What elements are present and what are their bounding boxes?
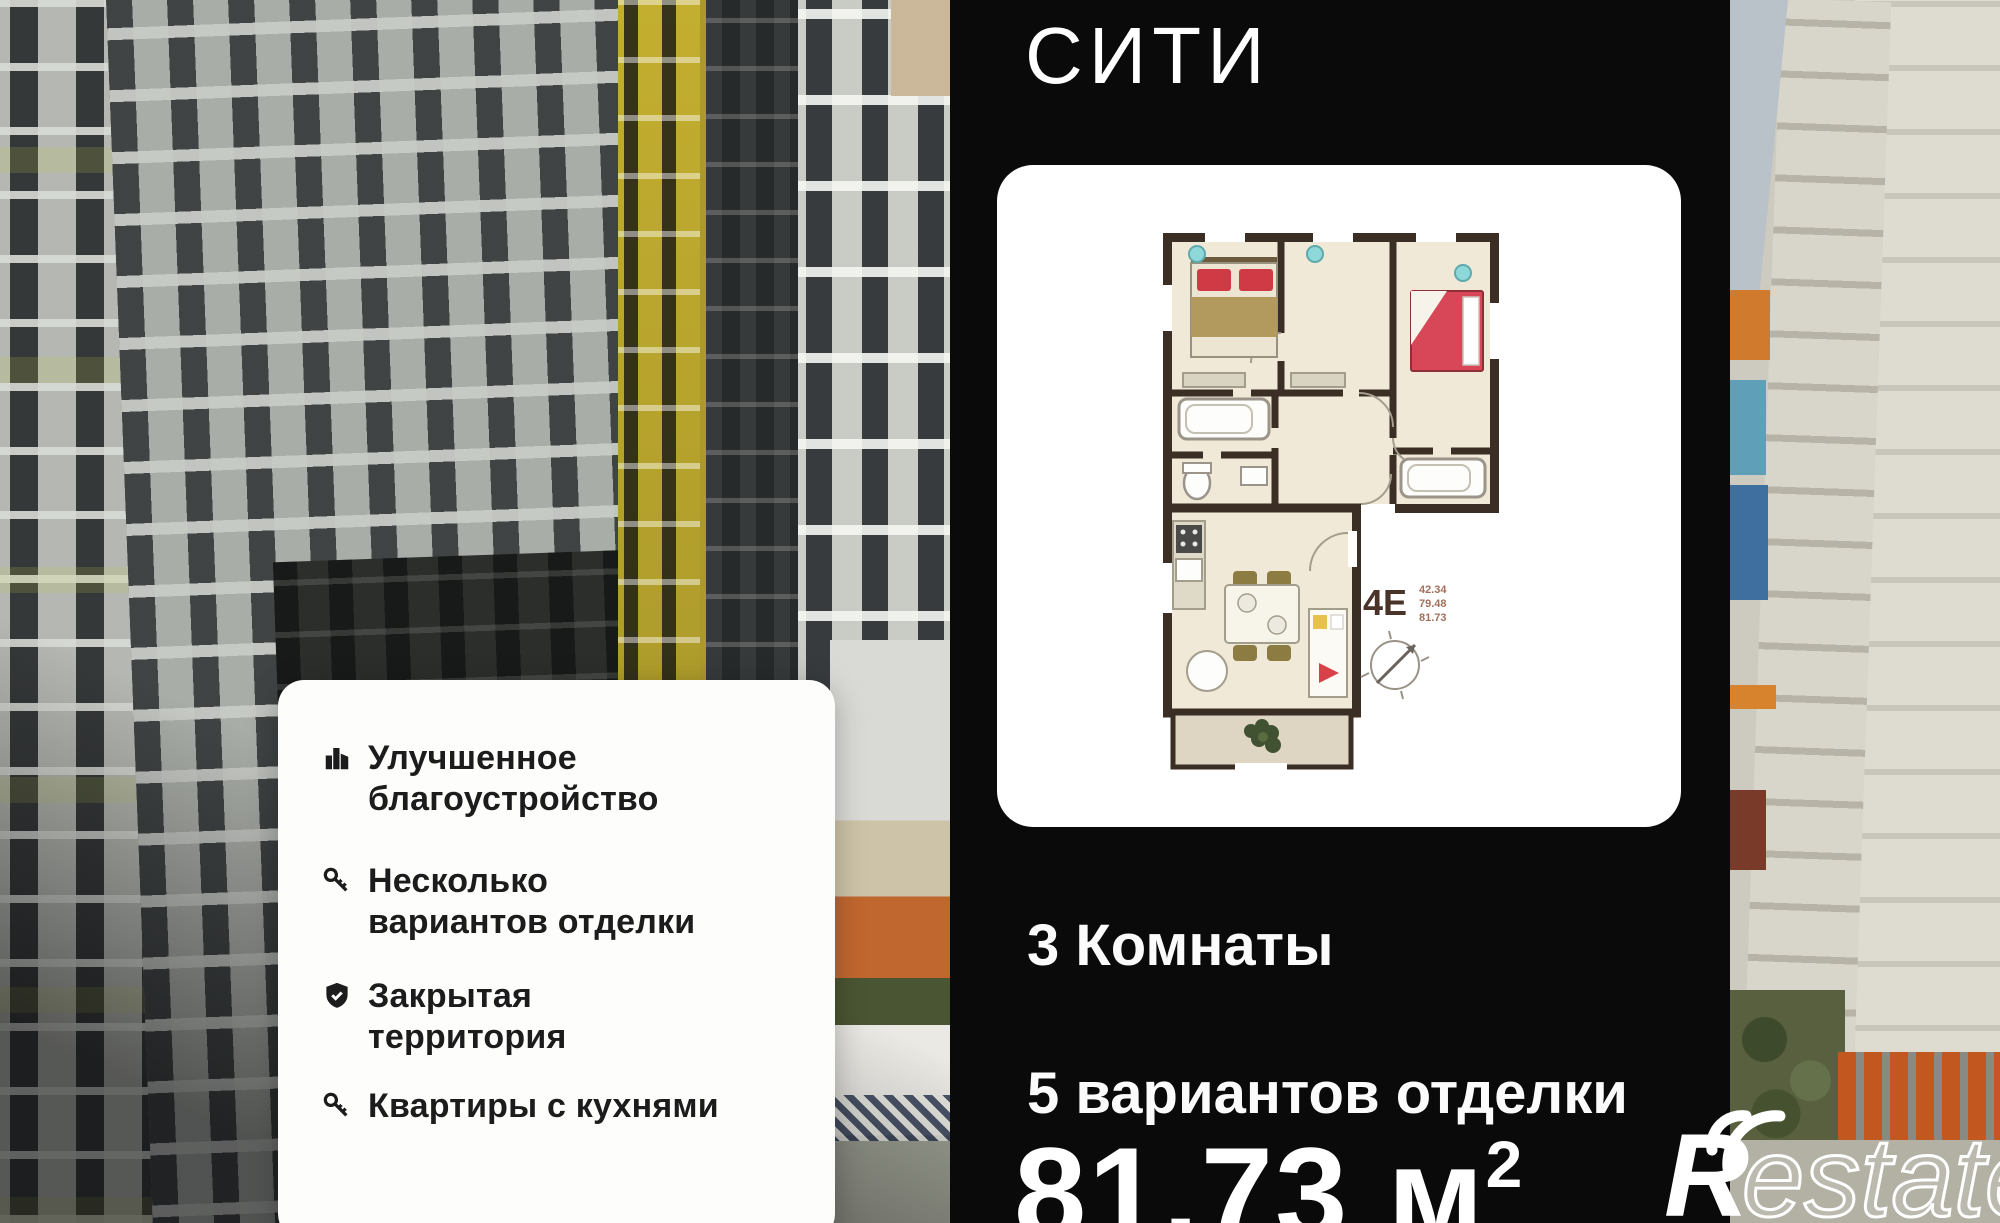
dark-red-balcony xyxy=(1730,790,1766,870)
rooms-count-text: 3 Комнаты xyxy=(1027,912,1334,979)
tent-checker-band xyxy=(830,1095,950,1142)
courtyard-strip xyxy=(830,640,950,1223)
key-icon xyxy=(322,866,352,896)
complex-title-line2: СИТИ xyxy=(1025,14,1271,98)
area-value: 81.73 xyxy=(1014,1120,1349,1223)
feature-label: Квартиры с кухнями xyxy=(368,1086,719,1127)
plan-type-label: 4Е xyxy=(1363,582,1407,623)
features-card: Улучшенное благоустройство Несколько вар… xyxy=(278,680,835,1223)
finish-options-text: 5 вариантов отделки xyxy=(1027,1060,1628,1127)
feature-item-finishes: Несколько вариантов отделки xyxy=(322,861,802,943)
feature-label: Улучшенное благоустройство xyxy=(368,738,659,820)
compass-rose xyxy=(1361,631,1429,699)
area-superscript: 2 xyxy=(1486,1127,1525,1201)
feature-label: Несколько вариантов отделки xyxy=(368,861,695,943)
key-icon xyxy=(322,1091,352,1121)
feature-label: Закрытая территория xyxy=(368,976,566,1058)
complex-title-line1-cropped: ЛЮТЕН xyxy=(1003,0,1364,10)
promo-banner: Улучшенное благоустройство Несколько вар… xyxy=(0,0,2000,1223)
feature-item-landscaping: Улучшенное благоустройство xyxy=(322,738,802,820)
watermark-initial: R xyxy=(1664,1110,1749,1223)
balcony-beige-block xyxy=(891,0,950,96)
orange-band xyxy=(1730,685,1776,709)
feature-item-kitchens: Квартиры с кухнями xyxy=(322,1086,802,1127)
blue-balcony xyxy=(1730,485,1768,600)
floor-plan-drawing: 4Е 42.34 79.48 81.73 xyxy=(1163,233,1499,775)
shield-check-icon xyxy=(322,981,352,1011)
colorful-balconies-strip xyxy=(1730,290,1772,930)
info-panel: ЛЮТЕН СИТИ xyxy=(950,0,1730,1223)
feature-item-closed-area: Закрытая территория xyxy=(322,976,802,1058)
floor-plan-card: 4Е 42.34 79.48 81.73 xyxy=(997,165,1681,827)
plan-area-1: 42.34 xyxy=(1419,584,1447,596)
area-unit: м xyxy=(1349,1120,1485,1223)
orange-balcony xyxy=(1730,290,1770,360)
area-text: 81.73 м2 xyxy=(1014,1118,1524,1223)
teal-balcony xyxy=(1730,380,1766,475)
buildings-icon xyxy=(322,743,352,773)
restate-watermark: R estate xyxy=(1650,1092,2000,1223)
right-buildings-photo xyxy=(1730,0,2000,1223)
plan-area-3: 81.73 xyxy=(1419,612,1447,624)
plan-area-2: 79.48 xyxy=(1419,598,1447,610)
watermark-text: estate xyxy=(1742,1115,2000,1223)
restate-logo: R estate xyxy=(1650,1092,2000,1223)
